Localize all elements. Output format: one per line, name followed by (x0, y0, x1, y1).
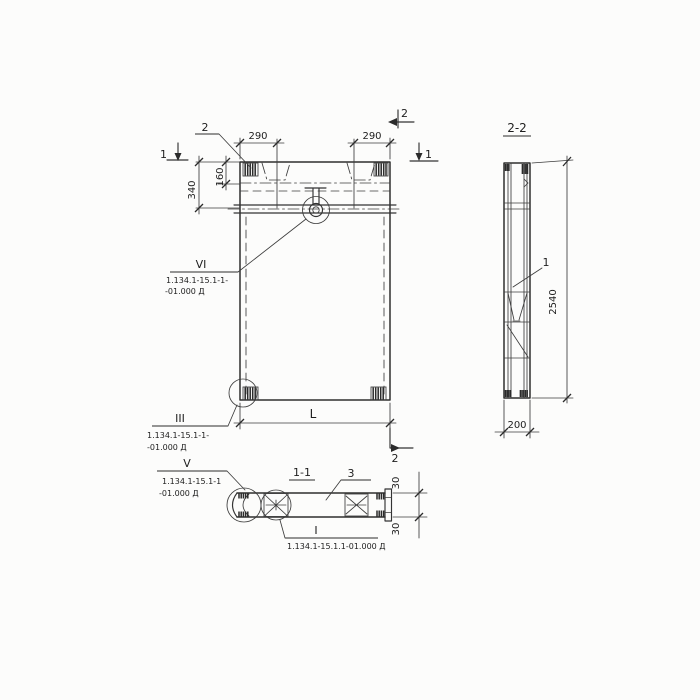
detail-iii-ref1: 1.134.1-15.1-1- (147, 431, 209, 440)
side-callout-1: 1 (513, 256, 550, 287)
section-mark-2-bottom: 2 (390, 428, 413, 465)
detail-iii-numeral: III (175, 412, 185, 425)
embed-plate-top-right (374, 163, 388, 176)
detail-v-numeral: V (183, 457, 191, 470)
section-mark-2-top: 2 (388, 107, 414, 128)
detail-v: V 1.134.1-15.1-1 -01.000 Д (157, 457, 245, 498)
detail-iii: III 1.134.1-15.1-1- -01.000 Д (147, 405, 237, 452)
callout-2: 2 (195, 121, 251, 168)
dim-290-left-label: 290 (248, 131, 267, 142)
recess-left (262, 163, 290, 180)
embed-plate-top-left (243, 163, 258, 176)
embed-plate-bottom-right (371, 387, 386, 400)
dim-340: 340 160 (187, 156, 240, 214)
dim-340-label: 340 (187, 180, 198, 199)
section-1-left-label: 1 (160, 148, 167, 161)
section-2-bottom-label: 2 (392, 452, 399, 465)
dim-30-bottom-label: 30 (391, 523, 402, 536)
dim-30-top-label: 30 (391, 477, 402, 490)
section-mark-1-right: 1 (410, 143, 438, 161)
drawing-canvas: 290 290 340 160 1 1 (0, 0, 700, 700)
dim-290-right-label: 290 (362, 131, 381, 142)
section-right-end (377, 489, 392, 521)
side-view: 2-2 1 200 (495, 121, 573, 438)
side-bottom-hatch (506, 390, 528, 397)
detail-circle-vi (303, 197, 330, 224)
callout-3: 3 (326, 467, 371, 500)
detail-v-ref2: -01.000 Д (159, 489, 199, 498)
section-2-top-label: 2 (401, 107, 408, 120)
side-inner-edges (508, 163, 527, 398)
dim-160-label: 160 (215, 167, 226, 186)
dim-2540: 2540 (532, 156, 573, 403)
callout-2-label: 2 (202, 121, 209, 134)
dim-200-label: 200 (507, 420, 526, 431)
dim-290-right: 290 (348, 131, 396, 208)
panel-outline (240, 162, 390, 400)
detail-vi-numeral: VI (196, 258, 207, 271)
dim-2540-label: 2540 (548, 289, 559, 314)
panel-working-drawing: 290 290 340 160 1 1 (0, 0, 700, 700)
dim-200: 200 (495, 400, 539, 438)
detail-vi-ref1: 1.134.1-15.1-1- (166, 276, 228, 285)
section-mark-1-left: 1 (160, 143, 188, 161)
section-view: 1-1 3 (157, 457, 427, 551)
callout-3-label: 3 (348, 467, 355, 480)
side-top-hatch (506, 164, 528, 174)
detail-vi: VI 1.134.1-15.1-1- -01.000 Д (165, 219, 306, 296)
detail-i: I 1.134.1-15.1.1-01.000 Д (280, 520, 386, 551)
dim-30-group: 30 30 (391, 472, 427, 538)
anchor-socket-right (345, 494, 368, 516)
recess-right (347, 163, 375, 180)
side-view-title: 2-2 (507, 121, 527, 135)
detail-i-ref: 1.134.1-15.1.1-01.000 Д (287, 542, 386, 551)
dim-length: L (234, 403, 396, 429)
detail-iii-ref2: -01.000 Д (147, 443, 187, 452)
section-bar-left-cap (233, 493, 238, 517)
lifting-loop (305, 188, 326, 217)
section-1-right-label: 1 (425, 148, 432, 161)
side-callout-1-label: 1 (543, 256, 550, 269)
detail-v-ref1: 1.134.1-15.1-1 (162, 477, 221, 486)
section-view-title: 1-1 (293, 466, 311, 479)
dim-290-left: 290 (234, 131, 284, 208)
detail-i-numeral: I (314, 524, 317, 537)
dim-length-label: L (310, 407, 317, 421)
anchor-socket-left (264, 494, 288, 517)
detail-vi-ref2: -01.000 Д (165, 287, 205, 296)
front-view: 290 290 340 160 1 1 (147, 107, 438, 465)
